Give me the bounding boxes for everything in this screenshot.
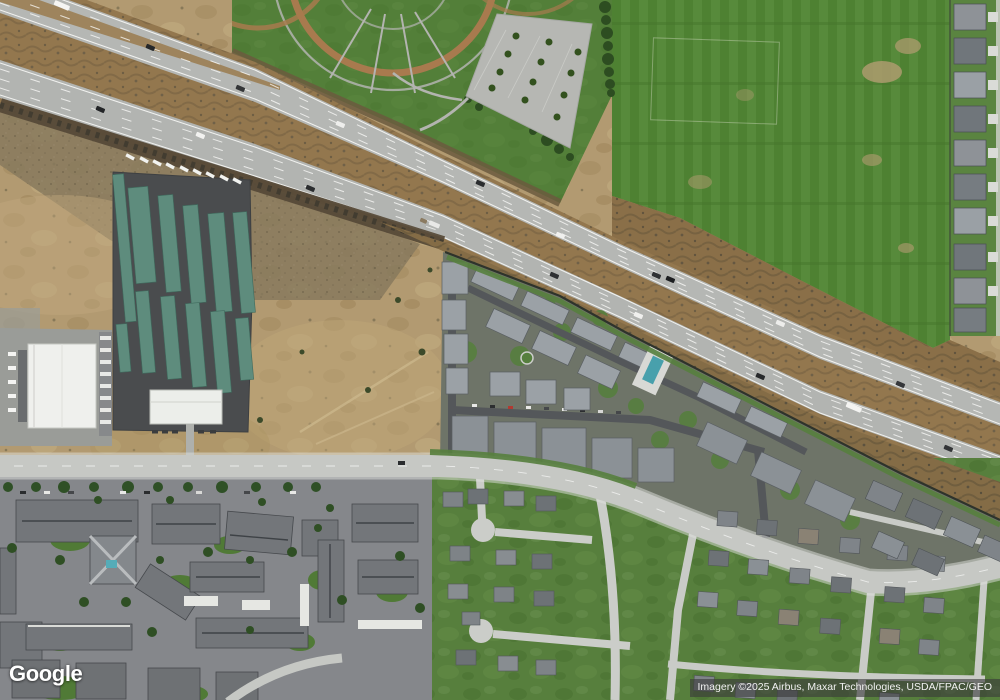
courtyard-circle xyxy=(521,352,533,364)
apartment-pool xyxy=(106,560,117,568)
google-logo[interactable]: Google xyxy=(9,661,82,687)
car-on-road xyxy=(398,461,405,465)
map-canvas[interactable]: Google Imagery ©2025 Airbus, Maxar Techn… xyxy=(0,0,1000,700)
office-building-roof xyxy=(150,390,222,424)
satellite-imagery xyxy=(0,0,1000,700)
house-row-top-right xyxy=(950,0,1000,336)
imagery-attribution: Imagery ©2025 Airbus, Maxar Technologies… xyxy=(690,679,1000,697)
